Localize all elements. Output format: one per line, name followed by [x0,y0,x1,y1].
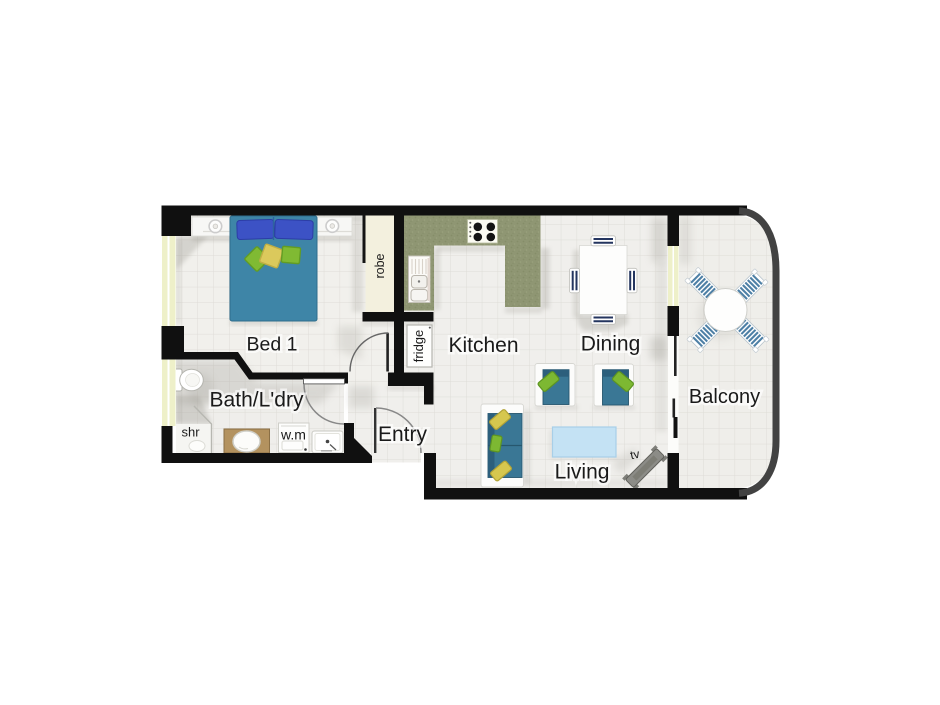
svg-text:fridge: fridge [411,330,426,363]
svg-text:Bath/L'dry: Bath/L'dry [210,389,304,412]
svg-text:Kitchen: Kitchen [448,334,518,357]
svg-text:shr: shr [181,425,200,440]
svg-text:Living: Living [555,461,610,484]
svg-text:Balcony: Balcony [689,386,760,408]
svg-text:Dining: Dining [581,333,641,356]
svg-text:w.m: w.m [280,427,306,443]
svg-text:Entry: Entry [378,423,428,446]
svg-text:Bed 1: Bed 1 [247,334,298,356]
svg-text:robe: robe [373,253,387,278]
